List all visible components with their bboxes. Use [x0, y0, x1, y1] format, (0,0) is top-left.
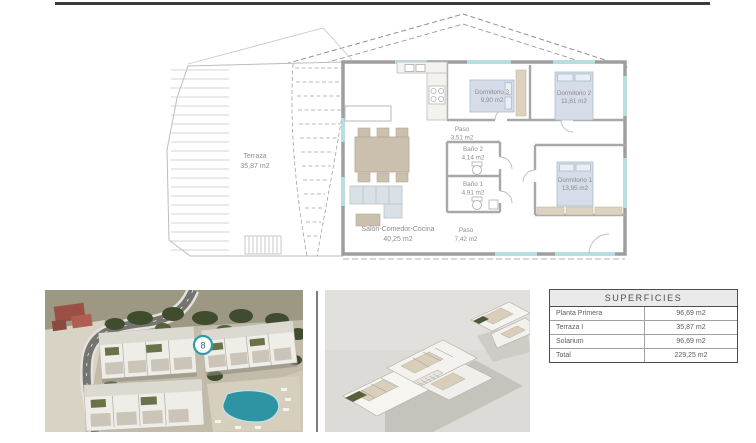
row-label: Planta Primera — [550, 307, 645, 320]
building-row-b — [201, 321, 297, 376]
room-label-dormitorio3: Dormitorio 3 — [475, 89, 510, 96]
table-row-solarium: Solarium 96,69 m2 — [550, 335, 737, 349]
room-label-salon: Salón-Comedor-Cocina — [361, 226, 434, 233]
room-area-dormitorio2: 11,61 m2 — [561, 98, 587, 105]
panel-divider — [316, 291, 318, 432]
bath-sink-icon — [489, 200, 498, 209]
row-label: Total — [550, 349, 645, 362]
dining-table — [355, 137, 409, 172]
room-label-paso-lower: Paso — [459, 227, 474, 234]
table-row-planta-primera: Planta Primera 96,69 m2 — [550, 307, 737, 321]
row-value: 96,69 m2 — [645, 307, 737, 320]
room-area-paso-upper: 3,51 m2 — [451, 135, 474, 142]
wardrobe — [516, 70, 526, 116]
pool-area — [207, 376, 301, 432]
building-row-a — [99, 327, 197, 384]
terrace-deck-lines — [171, 70, 229, 250]
row-value: 35,87 m2 — [645, 321, 737, 334]
wardrobe — [537, 207, 622, 215]
building-row-c — [84, 379, 204, 431]
terrace-region: Terraza 35,87 m2 — [167, 62, 350, 256]
room-area-bano2: 4,14 m2 — [462, 155, 485, 162]
room-label-bano2: Baño 2 — [463, 146, 483, 153]
terrace-stairs — [245, 236, 281, 254]
room-label-dormitorio1: Dormitorio 1 — [558, 177, 593, 184]
row-label: Solarium — [550, 335, 645, 348]
bed — [470, 80, 514, 112]
coffee-table — [356, 214, 380, 226]
floor-plan: Terraza 35,87 m2 — [165, 10, 640, 262]
render-3d-floorplan — [325, 290, 530, 432]
top-rule — [55, 2, 710, 5]
unit-marker-label: 8 — [200, 341, 205, 351]
room-area-dormitorio3: 9,90 m2 — [481, 97, 504, 104]
surfaces-table: SUPERFICIES Planta Primera 96,69 m2 Terr… — [549, 289, 738, 363]
unit-marker: 8 — [194, 336, 212, 354]
room-area-terraza: 35,87 m2 — [240, 163, 269, 170]
brochure-page: Terraza 35,87 m2 — [0, 0, 756, 443]
row-value: 229,25 m2 — [645, 349, 737, 362]
surfaces-table-title: SUPERFICIES — [550, 290, 737, 307]
bed — [557, 162, 593, 206]
room-area-salon: 40,25 m2 — [383, 236, 412, 243]
stove-icon — [429, 86, 445, 104]
room-label-paso-upper: Paso — [455, 126, 470, 133]
table-row-terraza: Terraza I 35,87 m2 — [550, 321, 737, 335]
toilet-icon — [472, 197, 482, 210]
room-area-dormitorio1: 13,95 m2 — [562, 185, 589, 192]
toilet-icon — [472, 162, 482, 175]
row-label: Terraza I — [550, 321, 645, 334]
kitchen-island — [345, 106, 391, 121]
room-area-paso-lower: 7,42 m2 — [455, 236, 478, 243]
room-label-terraza: Terraza — [243, 153, 266, 160]
room-label-dormitorio2: Dormitorio 2 — [557, 90, 592, 97]
aerial-photo: 8 — [45, 290, 303, 432]
table-row-total: Total 229,25 m2 — [550, 349, 737, 362]
row-value: 96,69 m2 — [645, 335, 737, 348]
bedroom-2: Dormitorio 2 11,61 m2 — [555, 72, 593, 120]
room-label-bano1: Baño 1 — [463, 181, 483, 188]
room-area-bano1: 4,91 m2 — [462, 190, 485, 197]
